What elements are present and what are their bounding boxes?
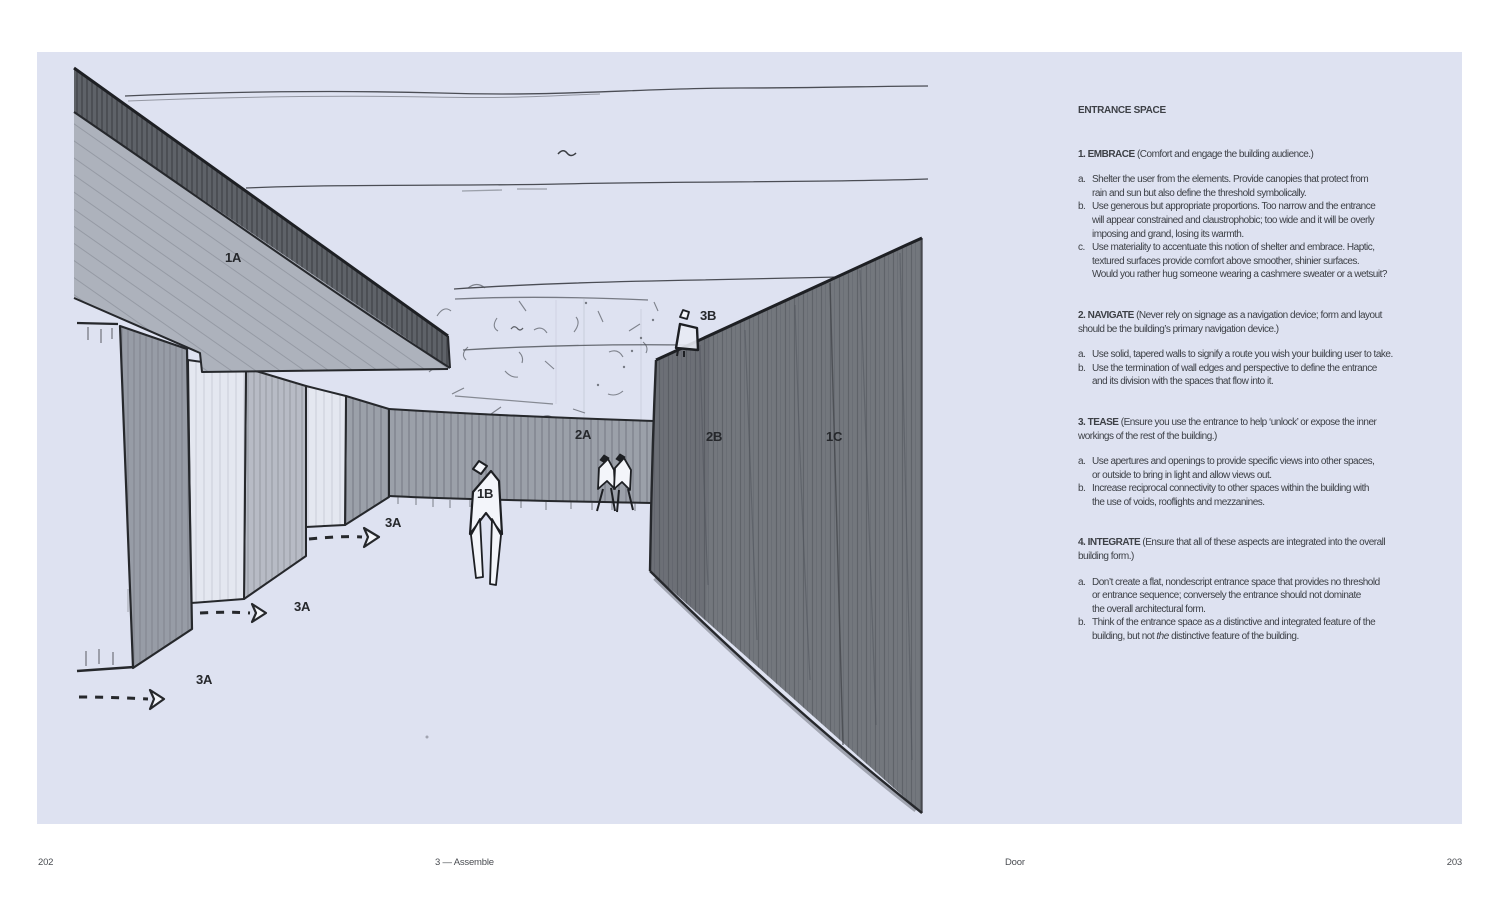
section-heading-rest: (Comfort and engage the building audienc… <box>1135 149 1314 160</box>
list-item-italic: the <box>1156 631 1168 642</box>
list-item-label: a. <box>1078 455 1092 482</box>
right-running-caption: Door <box>1005 857 1025 868</box>
list-item: a.Use solid, tapered walls to signify a … <box>1078 348 1438 362</box>
section-integrate: 4. INTEGRATE (Ensure that all of these a… <box>1078 536 1438 643</box>
list-item: a.Shelter the user from the elements. Pr… <box>1078 173 1438 200</box>
list-item-text: Use materiality to accentuate this notio… <box>1092 241 1438 282</box>
list-item: b.Use the termination of wall edges and … <box>1078 362 1438 389</box>
list-item-text: Don’t create a flat, nondescript entranc… <box>1092 576 1438 617</box>
sketch-label-1c: 1C <box>826 429 842 444</box>
sketch-label-3a-upper: 3A <box>385 515 401 530</box>
list-item-text-part: Think of the entrance space as <box>1092 617 1216 628</box>
list-item-label: b. <box>1078 616 1092 643</box>
section-heading: 4. INTEGRATE (Ensure that all of these a… <box>1078 536 1438 563</box>
sketch-label-3a-lower: 3A <box>196 672 212 687</box>
list-item-label: b. <box>1078 200 1092 241</box>
sketch-label-2a: 2A <box>575 427 591 442</box>
section-heading-number: 2. NAVIGATE <box>1078 310 1134 321</box>
sketch-label-3a-middle: 3A <box>294 599 310 614</box>
list-item-label: b. <box>1078 362 1092 389</box>
section-heading: 2. NAVIGATE (Never rely on signage as a … <box>1078 309 1438 336</box>
list-item-label: c. <box>1078 241 1092 282</box>
right-page-number: 203 <box>1447 857 1462 868</box>
section-embrace: 1. EMBRACE (Comfort and engage the build… <box>1078 148 1438 282</box>
sketch-label-2b: 2B <box>706 429 722 444</box>
page-title: ENTRANCE SPACE <box>1078 104 1438 118</box>
section-tease: 3. TEASE (Ensure you use the entrance to… <box>1078 416 1438 510</box>
list-item: b.Think of the entrance space as a disti… <box>1078 616 1438 643</box>
list-item-text: Use solid, tapered walls to signify a ro… <box>1092 348 1438 362</box>
sketch-label-1b: 1B <box>477 486 493 501</box>
list-item: b.Increase reciprocal connectivity to ot… <box>1078 482 1438 509</box>
section-navigate: 2. NAVIGATE (Never rely on signage as a … <box>1078 309 1438 389</box>
list-item-text: Use apertures and openings to provide sp… <box>1092 455 1438 482</box>
section-heading-number: 4. INTEGRATE <box>1078 537 1140 548</box>
list-item-text: Increase reciprocal connectivity to othe… <box>1092 482 1438 509</box>
left-page-number: 202 <box>38 857 53 868</box>
list-item-text: Use generous but appropriate proportions… <box>1092 200 1438 241</box>
section-heading-number: 1. EMBRACE <box>1078 149 1135 160</box>
left-running-caption: 3 — Assemble <box>435 857 494 868</box>
sketch-label-1a: 1A <box>225 250 241 265</box>
list-item: a.Use apertures and openings to provide … <box>1078 455 1438 482</box>
list-item: a.Don’t create a flat, nondescript entra… <box>1078 576 1438 617</box>
list-item: c.Use materiality to accentuate this not… <box>1078 241 1438 282</box>
list-item: b.Use generous but appropriate proportio… <box>1078 200 1438 241</box>
section-heading: 3. TEASE (Ensure you use the entrance to… <box>1078 416 1438 443</box>
list-item-label: b. <box>1078 482 1092 509</box>
list-item-label: a. <box>1078 173 1092 200</box>
list-item-text: Use the termination of wall edges and pe… <box>1092 362 1438 389</box>
list-item-text: Shelter the user from the elements. Prov… <box>1092 173 1438 200</box>
section-heading: 1. EMBRACE (Comfort and engage the build… <box>1078 148 1438 162</box>
list-item-label: a. <box>1078 576 1092 617</box>
section-heading-rest: (Ensure you use the entrance to help ‘un… <box>1078 417 1376 442</box>
list-item-text: Think of the entrance space as a distinc… <box>1092 616 1438 643</box>
article-column: ENTRANCE SPACE 1. EMBRACE (Comfort and e… <box>1078 104 1438 644</box>
list-item-text-part: distinctive feature of the building. <box>1169 631 1299 642</box>
section-heading-number: 3. TEASE <box>1078 417 1118 428</box>
list-item-label: a. <box>1078 348 1092 362</box>
sketch-label-3b: 3B <box>700 308 716 323</box>
